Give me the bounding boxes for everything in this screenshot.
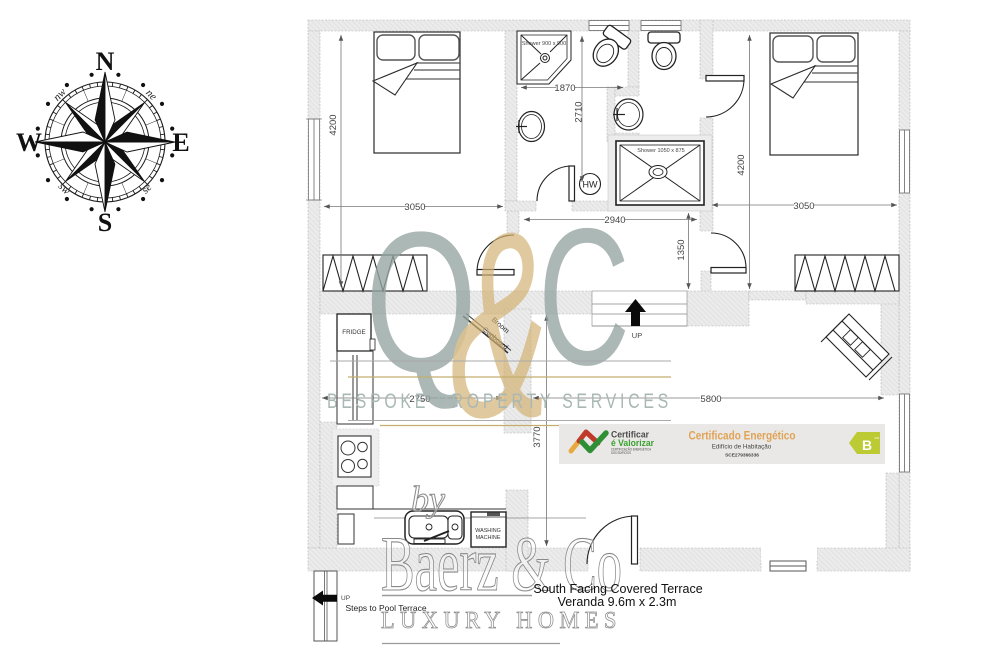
svg-text:3050: 3050 <box>793 201 814 212</box>
svg-text:W: W <box>16 128 42 157</box>
svg-text:BESPOKE PROPERTY SERVICES: BESPOKE PROPERTY SERVICES <box>327 389 672 413</box>
svg-text:se: se <box>139 181 154 196</box>
svg-text:DOS EDIFÍCIOS: DOS EDIFÍCIOS <box>611 451 631 455</box>
svg-text:5800: 5800 <box>700 394 721 405</box>
svg-text:Shower 900 x 900: Shower 900 x 900 <box>522 41 566 47</box>
svg-text:LUXURY HOMES: LUXURY HOMES <box>381 608 622 634</box>
svg-text:B: B <box>862 437 872 453</box>
svg-text:Certificado Energético: Certificado Energético <box>689 431 796 443</box>
svg-text:N: N <box>96 47 115 76</box>
svg-text:E: E <box>172 128 189 157</box>
svg-text:FRIDGE: FRIDGE <box>342 329 365 336</box>
svg-text:sw: sw <box>56 181 73 198</box>
svg-text:S: S <box>98 208 112 237</box>
svg-text:Veranda 9.6m x 2.3m: Veranda 9.6m x 2.3m <box>558 595 677 609</box>
svg-text:Edifício de Habitação: Edifício de Habitação <box>712 444 772 451</box>
svg-text:1870: 1870 <box>554 83 575 94</box>
svg-text:2710: 2710 <box>574 101 585 122</box>
svg-text:UP: UP <box>341 595 350 602</box>
svg-text:ne: ne <box>143 87 159 103</box>
svg-text:4200: 4200 <box>328 114 339 135</box>
svg-text:Shower 1050 x 875: Shower 1050 x 875 <box>637 148 684 154</box>
svg-text:by: by <box>411 479 445 519</box>
svg-text:4200: 4200 <box>736 154 747 175</box>
svg-text:&: & <box>450 177 550 473</box>
svg-text:UP: UP <box>632 331 642 340</box>
svg-text:C: C <box>538 188 630 406</box>
svg-text:--: -- <box>875 435 880 442</box>
svg-text:SCE279366336: SCE279366336 <box>725 453 759 459</box>
svg-text:South Facing Covered Terrace: South Facing Covered Terrace <box>533 582 702 596</box>
svg-text:1350: 1350 <box>676 239 687 260</box>
